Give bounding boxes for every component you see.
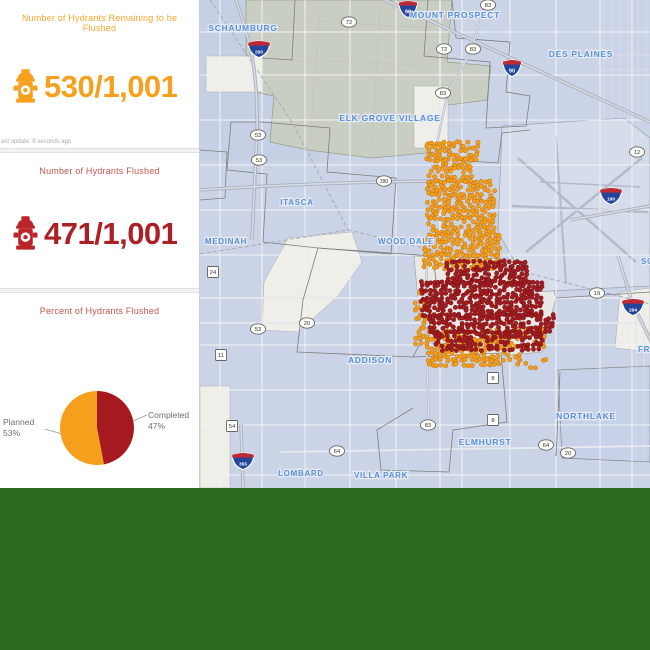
city-label-northlake: NORTHLAKE xyxy=(556,411,616,421)
svg-text:54: 54 xyxy=(229,424,236,430)
svg-text:83: 83 xyxy=(425,423,431,429)
svg-text:19: 19 xyxy=(594,291,600,297)
svg-text:290: 290 xyxy=(255,49,263,55)
indicator-remaining-title: Number of Hydrants Remaining to be Flush… xyxy=(0,13,199,33)
route-oval-390: 390 xyxy=(376,176,391,186)
pie-slice-completed xyxy=(97,391,134,464)
city-label-des-plaines: DES PLAINES xyxy=(549,49,613,59)
route-square-8: 8 xyxy=(488,373,499,384)
svg-text:8: 8 xyxy=(491,376,494,382)
svg-text:294: 294 xyxy=(629,307,637,313)
pie-callout-line-planned xyxy=(45,429,62,434)
pie-chart-panel: Percent of Hydrants Flushed Planned 53% … xyxy=(0,293,199,488)
city-label-schaumburg: SCHAUMBURG xyxy=(208,23,277,33)
route-oval-12: 12 xyxy=(629,147,644,157)
svg-text:355: 355 xyxy=(239,461,247,467)
svg-text:64: 64 xyxy=(543,443,550,449)
svg-text:64: 64 xyxy=(334,449,341,455)
svg-text:90: 90 xyxy=(509,68,515,74)
route-oval-64: 64 xyxy=(329,446,344,456)
svg-text:53: 53 xyxy=(255,327,261,333)
svg-text:190: 190 xyxy=(607,196,615,202)
hydrant-icon xyxy=(13,215,38,253)
svg-text:390: 390 xyxy=(380,179,389,185)
route-oval-83: 83 xyxy=(480,0,495,10)
city-label-elk-grove-village: ELK GROVE VILLAGE xyxy=(339,113,440,123)
indicator-remaining: Number of Hydrants Remaining to be Flush… xyxy=(0,0,199,148)
svg-text:8: 8 xyxy=(491,418,494,424)
svg-text:53: 53 xyxy=(256,158,262,164)
route-oval-53: 53 xyxy=(250,324,265,334)
city-label-medinah: MEDINAH xyxy=(205,237,247,246)
hydrant-icon xyxy=(13,68,38,106)
route-square-8: 8 xyxy=(488,415,499,426)
flushed-value: 471/1,001 xyxy=(44,216,177,252)
svg-text:53: 53 xyxy=(255,133,261,139)
svg-text:72: 72 xyxy=(441,47,447,53)
svg-text:12: 12 xyxy=(634,150,640,156)
city-label-villa-park: VILLA PARK xyxy=(354,471,408,480)
route-oval-72: 72 xyxy=(341,17,356,27)
map[interactable]: 7283728383535339012192053836464202411548… xyxy=(200,0,650,488)
route-oval-19: 19 xyxy=(589,288,604,298)
city-label-elmhurst: ELMHURST xyxy=(459,437,512,447)
indicator-flushed-title: Number of Hydrants Flushed xyxy=(0,166,199,176)
svg-text:83: 83 xyxy=(470,47,476,53)
route-oval-53: 53 xyxy=(250,130,265,140)
svg-text:24: 24 xyxy=(210,270,217,276)
svg-text:72: 72 xyxy=(346,20,352,26)
svg-text:20: 20 xyxy=(565,451,571,457)
route-oval-83: 83 xyxy=(435,88,450,98)
city-label-mount-prospect: MOUNT PROSPECT xyxy=(410,10,500,20)
route-square-54: 54 xyxy=(227,421,238,432)
pie-label-planned: Planned 53% xyxy=(3,417,34,439)
route-oval-83: 83 xyxy=(465,44,480,54)
route-square-24: 24 xyxy=(208,267,219,278)
svg-text:20: 20 xyxy=(304,321,310,327)
pie-chart xyxy=(0,308,199,488)
remaining-value: 530/1,001 xyxy=(44,69,177,105)
city-label-wood-dale: WOOD DALE xyxy=(378,237,434,246)
dashboard: Number of Hydrants Remaining to be Flush… xyxy=(0,0,650,650)
city-label-itasca: ITASCA xyxy=(280,198,313,207)
svg-text:11: 11 xyxy=(218,353,224,359)
city-label-schiller-park: SCHILLER PARK xyxy=(641,257,650,266)
route-oval-64: 64 xyxy=(538,440,553,450)
footer-banner: BENSENVILLE DEPARTMENT OF PUBLIC WORKS xyxy=(0,488,650,650)
city-label-franklin-park: FRANKLIN PARK xyxy=(638,345,650,354)
route-oval-83: 83 xyxy=(420,420,435,430)
last-update-note: ast update: 8 seconds ago xyxy=(1,139,71,145)
route-oval-20: 20 xyxy=(299,318,314,328)
sidebar: Number of Hydrants Remaining to be Flush… xyxy=(0,0,200,488)
city-label-lombard: LOMBARD xyxy=(278,469,324,478)
route-oval-53: 53 xyxy=(251,155,266,165)
indicator-flushed: Number of Hydrants Flushed 471/1 xyxy=(0,153,199,288)
city-label-addison: ADDISON xyxy=(348,355,392,365)
pie-callout-line-completed xyxy=(133,415,147,421)
route-square-11: 11 xyxy=(216,350,227,361)
pie-label-completed: Completed 47% xyxy=(148,410,189,432)
svg-text:83: 83 xyxy=(440,91,446,97)
svg-text:83: 83 xyxy=(485,3,491,9)
route-oval-72: 72 xyxy=(436,44,451,54)
route-oval-20: 20 xyxy=(560,448,575,458)
